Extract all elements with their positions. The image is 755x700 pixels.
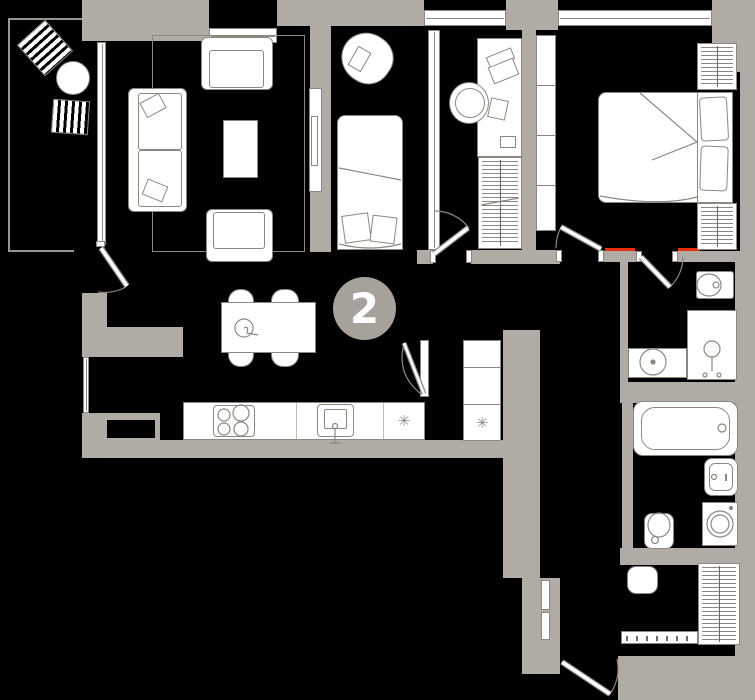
- wall: [160, 440, 503, 458]
- wall-niche: [107, 420, 155, 438]
- pocket-door-panel: [541, 580, 550, 610]
- door-leaf: [641, 257, 670, 287]
- door-jamb: [598, 250, 604, 262]
- closet-rod: [717, 46, 718, 87]
- balcony-edge: [8, 18, 10, 252]
- balcony-chair: [51, 99, 90, 135]
- door-leaf: [101, 248, 127, 286]
- bed-headboard-line: [697, 93, 698, 202]
- door-leaf: [561, 227, 601, 249]
- closet: [697, 43, 737, 90]
- dining-table: [221, 302, 316, 353]
- wall: [471, 250, 560, 264]
- wardrobe: [478, 157, 522, 249]
- door-jamb: [430, 250, 436, 263]
- door-arc: [556, 227, 561, 248]
- wall: [676, 251, 742, 262]
- shower: [687, 310, 737, 380]
- closet-rod: [717, 206, 718, 247]
- toilet: [644, 513, 674, 549]
- door-jamb: [672, 251, 678, 262]
- wall: [620, 262, 628, 384]
- wall: [277, 0, 424, 26]
- room-count-label: 2: [350, 284, 379, 333]
- tv: [311, 116, 318, 166]
- wall: [506, 0, 558, 30]
- counter-seam: [296, 403, 297, 439]
- bed-pillow: [369, 215, 397, 245]
- window: [83, 357, 89, 413]
- bathtub-inner: [641, 407, 730, 450]
- door-arc: [610, 659, 618, 694]
- closet: [697, 203, 737, 250]
- door-jamb: [96, 241, 105, 247]
- coffee-table: [223, 120, 258, 178]
- wall: [622, 403, 633, 548]
- closet-shelf: [537, 135, 555, 136]
- window: [97, 42, 106, 245]
- window: [558, 10, 712, 26]
- wall: [740, 72, 755, 262]
- toilet: [696, 271, 734, 299]
- pocket-door-panel: [541, 612, 550, 640]
- door-jamb: [636, 251, 642, 262]
- door-arc: [402, 344, 421, 394]
- door-threshold: [605, 248, 635, 251]
- bathroom-vanity: [628, 348, 687, 378]
- door-jamb: [556, 250, 562, 262]
- entrance-door-leaf: [562, 662, 610, 694]
- kitchen-sink-basin: [324, 409, 347, 429]
- door-jamb: [420, 340, 429, 397]
- entrance-door-leaf: [562, 662, 610, 694]
- shoe-bench: [621, 631, 698, 644]
- wall: [618, 656, 755, 700]
- partition-wall: [428, 30, 440, 250]
- fridge-icon: ✳: [463, 404, 501, 441]
- door-leaf: [561, 227, 601, 249]
- room-count-badge: 2: [333, 277, 396, 340]
- stove: [213, 405, 255, 437]
- wall: [82, 293, 107, 357]
- bed-pillow: [699, 96, 729, 141]
- bed-pillow: [699, 146, 729, 192]
- cabinet-divider: [464, 367, 500, 368]
- pouf: [627, 566, 658, 594]
- floor-plan: 2 ✳ ✳: [0, 0, 755, 700]
- washing-machine: [702, 502, 738, 546]
- bathroom-sink-basin: [709, 463, 733, 491]
- wall: [107, 327, 183, 357]
- wall: [602, 251, 640, 262]
- door-leaf: [101, 248, 127, 286]
- wardrobe-rod: [719, 566, 720, 642]
- closet-shelf: [537, 85, 555, 86]
- door-jamb: [466, 250, 472, 263]
- window: [424, 10, 506, 26]
- armchair-seat: [209, 50, 264, 88]
- balcony-table: [56, 61, 90, 95]
- wall: [522, 30, 536, 253]
- freezer-icon: ✳: [383, 404, 425, 438]
- bed-pillow: [341, 212, 372, 243]
- door-arc: [98, 287, 126, 292]
- bench-slats: [626, 636, 693, 641]
- balcony-edge: [8, 250, 74, 252]
- closet-shelf: [537, 185, 555, 186]
- armchair-seat: [213, 212, 265, 249]
- wall: [620, 382, 755, 403]
- door-leaf: [641, 257, 670, 287]
- note-pad: [500, 136, 516, 148]
- wardrobe-rod: [500, 160, 501, 246]
- office-chair-seat: [455, 88, 485, 118]
- wall: [503, 330, 540, 578]
- closet-column: [536, 35, 556, 231]
- entry-wardrobe: [698, 563, 740, 645]
